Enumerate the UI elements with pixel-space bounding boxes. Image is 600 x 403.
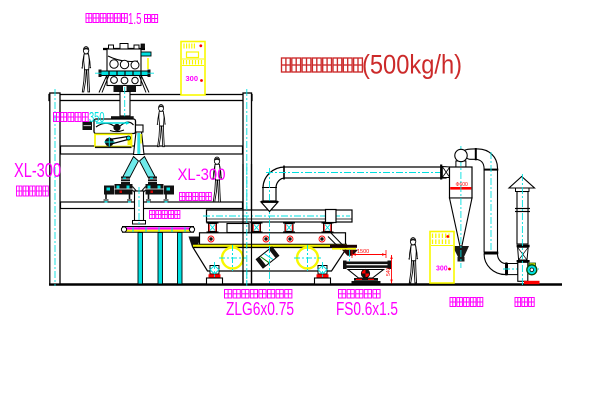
svg-text:XL-300: XL-300 <box>14 159 61 182</box>
svg-text:350: 350 <box>89 110 105 126</box>
svg-text:Φ600: Φ600 <box>456 182 469 188</box>
svg-text:540: 540 <box>386 267 392 276</box>
svg-text:(500kg/h): (500kg/h) <box>362 50 462 80</box>
svg-text:1500: 1500 <box>357 249 369 255</box>
svg-text:FS0.6x1.5: FS0.6x1.5 <box>336 299 398 319</box>
svg-text:ZLG6x0.75: ZLG6x0.75 <box>226 299 294 319</box>
svg-text:1.5: 1.5 <box>128 11 142 28</box>
svg-text:300: 300 <box>436 266 448 273</box>
svg-text:XL-300: XL-300 <box>178 166 226 184</box>
svg-text:300: 300 <box>186 74 199 83</box>
